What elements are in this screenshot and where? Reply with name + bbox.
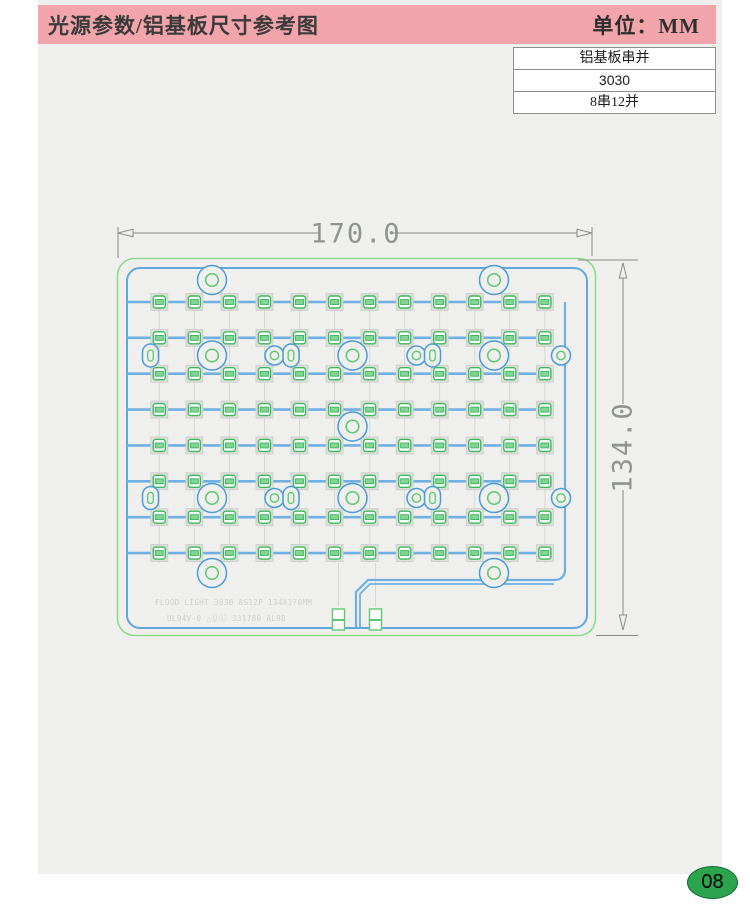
mounting-hole-small xyxy=(407,346,426,365)
mounting-hole-large xyxy=(198,266,227,295)
led-3030 xyxy=(396,329,413,346)
led-3030 xyxy=(291,401,308,418)
led-3030 xyxy=(361,365,378,382)
led-3030 xyxy=(151,294,168,311)
led-3030 xyxy=(291,509,308,526)
led-3030 xyxy=(396,473,413,490)
led-3030 xyxy=(466,401,483,418)
connector-pad xyxy=(370,609,382,630)
mounting-hole-small xyxy=(265,346,284,365)
led-3030 xyxy=(361,509,378,526)
led-3030 xyxy=(186,437,203,454)
mounting-hole-large xyxy=(338,341,367,370)
led-3030 xyxy=(536,365,553,382)
led-3030 xyxy=(466,294,483,311)
led-3030 xyxy=(466,473,483,490)
led-3030 xyxy=(256,329,273,346)
led-3030 xyxy=(361,545,378,562)
slot-hole xyxy=(143,487,159,510)
mounting-hole-large xyxy=(198,559,227,588)
led-3030 xyxy=(326,545,343,562)
mounting-hole-large xyxy=(480,341,509,370)
led-3030 xyxy=(151,365,168,382)
dimension-arrow xyxy=(118,229,133,236)
silkscreen-text-1: FLOOD LIGHT 3030 8S12P 134X170MM xyxy=(155,598,312,607)
led-3030 xyxy=(466,365,483,382)
mounting-hole-large xyxy=(198,484,227,513)
led-3030 xyxy=(536,545,553,562)
led-3030 xyxy=(326,473,343,490)
led-3030 xyxy=(396,294,413,311)
led-3030 xyxy=(326,365,343,382)
connector-pad xyxy=(333,609,345,630)
led-3030 xyxy=(221,545,238,562)
led-3030 xyxy=(431,545,448,562)
led-3030 xyxy=(151,509,168,526)
led-3030 xyxy=(186,509,203,526)
led-3030 xyxy=(361,401,378,418)
slot-hole xyxy=(283,487,299,510)
led-3030 xyxy=(291,545,308,562)
silkscreen-text-2: UL94V-0 △ⓊⓁ 331780 AL88 xyxy=(167,614,286,623)
page-number: 08 xyxy=(701,871,723,894)
led-3030 xyxy=(396,365,413,382)
led-3030 xyxy=(256,473,273,490)
led-3030 xyxy=(221,401,238,418)
led-3030 xyxy=(396,545,413,562)
dimension-width-label: 170.0 xyxy=(310,219,401,250)
mounting-hole-small xyxy=(552,346,571,365)
led-3030 xyxy=(361,329,378,346)
slot-hole xyxy=(425,344,441,367)
led-3030 xyxy=(466,509,483,526)
led-3030 xyxy=(536,509,553,526)
led-3030 xyxy=(291,365,308,382)
mounting-hole-small xyxy=(265,489,284,508)
led-3030 xyxy=(221,294,238,311)
mounting-hole-large xyxy=(338,412,367,441)
led-3030 xyxy=(256,437,273,454)
led-3030 xyxy=(221,437,238,454)
slot-hole xyxy=(143,344,159,367)
mounting-hole-large xyxy=(338,484,367,513)
pcb-dimension-drawing: FLOOD LIGHT 3030 8S12P 134X170MMUL94V-0 … xyxy=(0,0,750,912)
led-3030 xyxy=(501,294,518,311)
slot-hole xyxy=(425,487,441,510)
led-3030 xyxy=(186,365,203,382)
mounting-hole-large xyxy=(198,341,227,370)
led-3030 xyxy=(186,401,203,418)
led-3030 xyxy=(536,329,553,346)
led-3030 xyxy=(186,294,203,311)
mounting-hole-small xyxy=(407,489,426,508)
led-3030 xyxy=(326,401,343,418)
led-3030 xyxy=(536,473,553,490)
led-3030 xyxy=(431,437,448,454)
led-3030 xyxy=(501,365,518,382)
led-3030 xyxy=(221,365,238,382)
led-3030 xyxy=(501,545,518,562)
dimension-arrow xyxy=(577,229,592,236)
led-3030 xyxy=(361,473,378,490)
led-3030 xyxy=(466,545,483,562)
led-3030 xyxy=(396,401,413,418)
led-3030 xyxy=(221,473,238,490)
led-3030 xyxy=(256,509,273,526)
led-3030 xyxy=(326,437,343,454)
led-3030 xyxy=(431,509,448,526)
led-3030 xyxy=(256,545,273,562)
led-3030 xyxy=(256,365,273,382)
led-3030 xyxy=(221,329,238,346)
led-3030 xyxy=(291,294,308,311)
mounting-hole-large xyxy=(480,559,509,588)
led-3030 xyxy=(536,437,553,454)
led-3030 xyxy=(221,509,238,526)
led-3030 xyxy=(186,545,203,562)
mounting-hole-large xyxy=(480,484,509,513)
led-3030 xyxy=(396,437,413,454)
led-3030 xyxy=(501,401,518,418)
led-3030 xyxy=(186,473,203,490)
led-3030 xyxy=(536,401,553,418)
led-3030 xyxy=(186,329,203,346)
led-3030 xyxy=(291,437,308,454)
mounting-hole-large xyxy=(480,266,509,295)
led-3030 xyxy=(431,401,448,418)
mounting-hole-small xyxy=(552,489,571,508)
led-3030 xyxy=(326,509,343,526)
led-3030 xyxy=(501,437,518,454)
led-3030 xyxy=(431,294,448,311)
dimension-height-label: 134.0 xyxy=(608,401,639,492)
led-3030 xyxy=(151,545,168,562)
led-3030 xyxy=(256,294,273,311)
led-3030 xyxy=(501,329,518,346)
page-number-badge: 08 xyxy=(687,866,738,899)
led-3030 xyxy=(361,437,378,454)
led-3030 xyxy=(501,509,518,526)
led-3030 xyxy=(466,329,483,346)
catalog-page: 光源参数/铝基板尺寸参考图 单位：MM 铝基板串并 3030 8串12并 FLO… xyxy=(0,0,750,912)
led-3030 xyxy=(361,294,378,311)
led-3030 xyxy=(151,437,168,454)
led-3030 xyxy=(326,294,343,311)
slot-hole xyxy=(283,344,299,367)
led-3030 xyxy=(431,365,448,382)
led-3030 xyxy=(256,401,273,418)
led-3030 xyxy=(466,437,483,454)
led-3030 xyxy=(536,294,553,311)
dimension-arrow xyxy=(619,615,626,630)
led-3030 xyxy=(396,509,413,526)
dimension-arrow xyxy=(619,263,626,278)
led-3030 xyxy=(326,329,343,346)
led-3030 xyxy=(151,401,168,418)
